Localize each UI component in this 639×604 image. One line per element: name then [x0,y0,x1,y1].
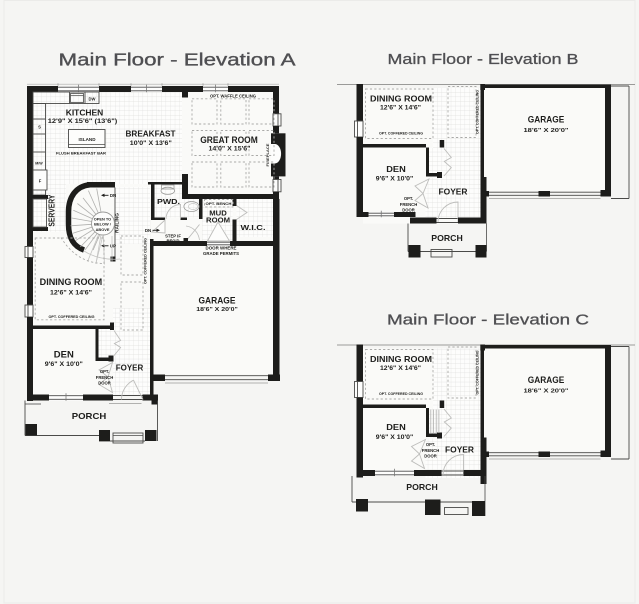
svg-text:DEN: DEN [386,164,406,174]
svg-text:F: F [39,179,42,184]
svg-text:GARAGE: GARAGE [528,115,565,125]
svg-text:PORCH: PORCH [72,411,107,421]
svg-text:BREAKFAST: BREAKFAST [126,130,176,139]
svg-text:DOOR: DOOR [424,454,437,459]
svg-text:9'6" X 10'0": 9'6" X 10'0" [45,361,83,368]
svg-text:12'6" X 14'6": 12'6" X 14'6" [380,105,421,112]
svg-text:FOYER: FOYER [445,445,474,455]
svg-text:OPT.: OPT. [100,369,109,374]
svg-text:MUD: MUD [209,211,227,218]
svg-text:OPT. COFFERED CEILING: OPT. COFFERED CEILING [475,90,479,134]
svg-text:OPT.: OPT. [426,442,435,447]
svg-text:W.I.C.: W.I.C. [241,225,266,232]
svg-text:14'0" X 15'6": 14'0" X 15'6" [209,146,251,153]
svg-text:DN: DN [110,193,116,198]
svg-text:DW: DW [89,96,96,101]
svg-text:PORCH: PORCH [431,233,463,243]
svg-text:10'0" X 13'6": 10'0" X 13'6" [130,140,172,147]
svg-text:DOOR: DOOR [402,208,415,213]
svg-text:12'6" X 14'6": 12'6" X 14'6" [50,290,92,297]
svg-text:DEN: DEN [386,422,406,432]
svg-text:DEN: DEN [54,350,74,360]
svg-text:FRENCH: FRENCH [400,202,417,207]
svg-text:OPT. BENCH: OPT. BENCH [206,202,232,206]
svg-text:ABOVE: ABOVE [96,227,110,232]
svg-text:18'6" X 20'0": 18'6" X 20'0" [524,128,569,134]
svg-text:Main Floor - Elevation B: Main Floor - Elevation B [388,51,579,68]
svg-text:DINING ROOM: DINING ROOM [40,277,103,287]
svg-text:FOYER: FOYER [439,187,468,197]
svg-text:M/W: M/W [35,162,43,166]
svg-text:OPT.: OPT. [404,196,413,201]
svg-text:RAILING: RAILING [115,213,120,233]
svg-text:GARAGE: GARAGE [528,375,565,385]
svg-text:Main Floor - Elevation C: Main Floor - Elevation C [387,312,589,329]
svg-text:SERVERY: SERVERY [48,194,57,227]
svg-text:FLUSH BREAKFAST BAR: FLUSH BREAKFAST BAR [56,152,106,156]
svg-text:18'6" X 20'0": 18'6" X 20'0" [524,389,569,395]
svg-text:9'6" X 10'0": 9'6" X 10'0" [376,435,414,441]
svg-text:FRENCH: FRENCH [96,375,113,380]
svg-text:DOOR: DOOR [98,381,111,386]
svg-text:OPT. COFFERED CEILING: OPT. COFFERED CEILING [475,350,479,394]
svg-text:OPT. WAFFLE CEILING: OPT. WAFFLE CEILING [210,94,257,99]
svg-text:KITCHEN: KITCHEN [66,107,104,117]
svg-text:OPT. COFFERED CEILING: OPT. COFFERED CEILING [379,391,423,396]
svg-text:OPT. COFFERED CEILING: OPT. COFFERED CEILING [49,314,95,319]
svg-text:GRADE PERMITS: GRADE PERMITS [203,251,239,256]
svg-text:DINING ROOM: DINING ROOM [370,93,432,103]
svg-text:18'6" X 20'0": 18'6" X 20'0" [196,307,238,313]
svg-text:OPT. COFFERED CEILING: OPT. COFFERED CEILING [143,238,148,284]
svg-text:UP: UP [110,244,116,249]
svg-text:S: S [38,125,41,130]
svg-text:OPT. COFFERED CEILING: OPT. COFFERED CEILING [379,131,423,136]
svg-text:Main Floor - Elevation A: Main Floor - Elevation A [59,50,296,70]
svg-text:FRENCH: FRENCH [422,448,439,453]
svg-text:ISLAND: ISLAND [79,137,96,142]
svg-text:DN: DN [145,228,151,233]
svg-text:GREAT ROOM: GREAT ROOM [200,135,258,146]
svg-text:FIREPLACE: FIREPLACE [266,143,270,167]
svg-text:PORCH: PORCH [406,482,438,492]
svg-text:DOOR WHERE: DOOR WHERE [206,246,237,251]
svg-text:DINING ROOM: DINING ROOM [370,354,432,364]
svg-text:GARAGE: GARAGE [199,296,236,306]
svg-text:FOYER: FOYER [116,363,144,373]
svg-text:9'6" X 10'0": 9'6" X 10'0" [376,177,414,183]
svg-text:12'9" X 15'6" (13'6"): 12'9" X 15'6" (13'6") [48,118,118,125]
svg-text:12'6" X 14'6": 12'6" X 14'6" [380,365,421,372]
